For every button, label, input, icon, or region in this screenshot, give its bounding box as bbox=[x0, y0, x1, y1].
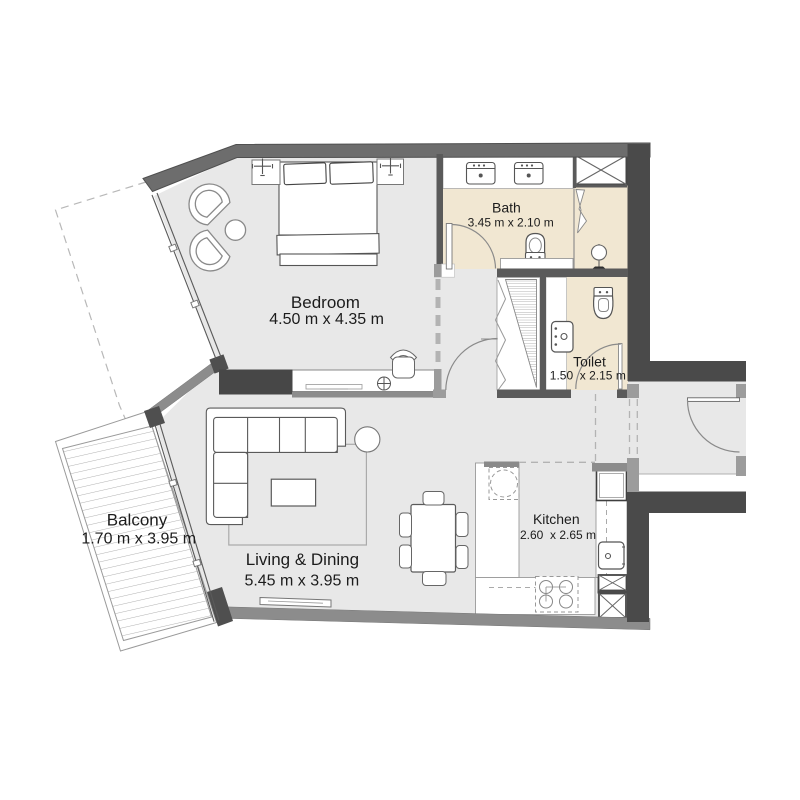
svg-text:Toilet: Toilet bbox=[573, 354, 606, 370]
svg-text:2.60 x 2.65 m: 2.60 x 2.65 m bbox=[520, 528, 596, 542]
svg-text:Kitchen: Kitchen bbox=[533, 511, 580, 527]
svg-text:Living & Dining: Living & Dining bbox=[246, 550, 359, 569]
svg-text:Balcony: Balcony bbox=[107, 511, 168, 530]
svg-text:Bedroom: Bedroom bbox=[291, 293, 360, 312]
svg-text:Bath: Bath bbox=[492, 200, 521, 216]
svg-text:4.50 m x 4.35 m: 4.50 m x 4.35 m bbox=[269, 311, 384, 328]
svg-text:3.45 m x 2.10 m: 3.45 m x 2.10 m bbox=[468, 215, 554, 229]
svg-text:5.45 m x 3.95 m: 5.45 m x 3.95 m bbox=[244, 573, 359, 590]
svg-text:1.70 m x 3.95 m: 1.70 m x 3.95 m bbox=[81, 531, 196, 548]
svg-text:1.50 x 2.15 m: 1.50 x 2.15 m bbox=[550, 369, 626, 383]
